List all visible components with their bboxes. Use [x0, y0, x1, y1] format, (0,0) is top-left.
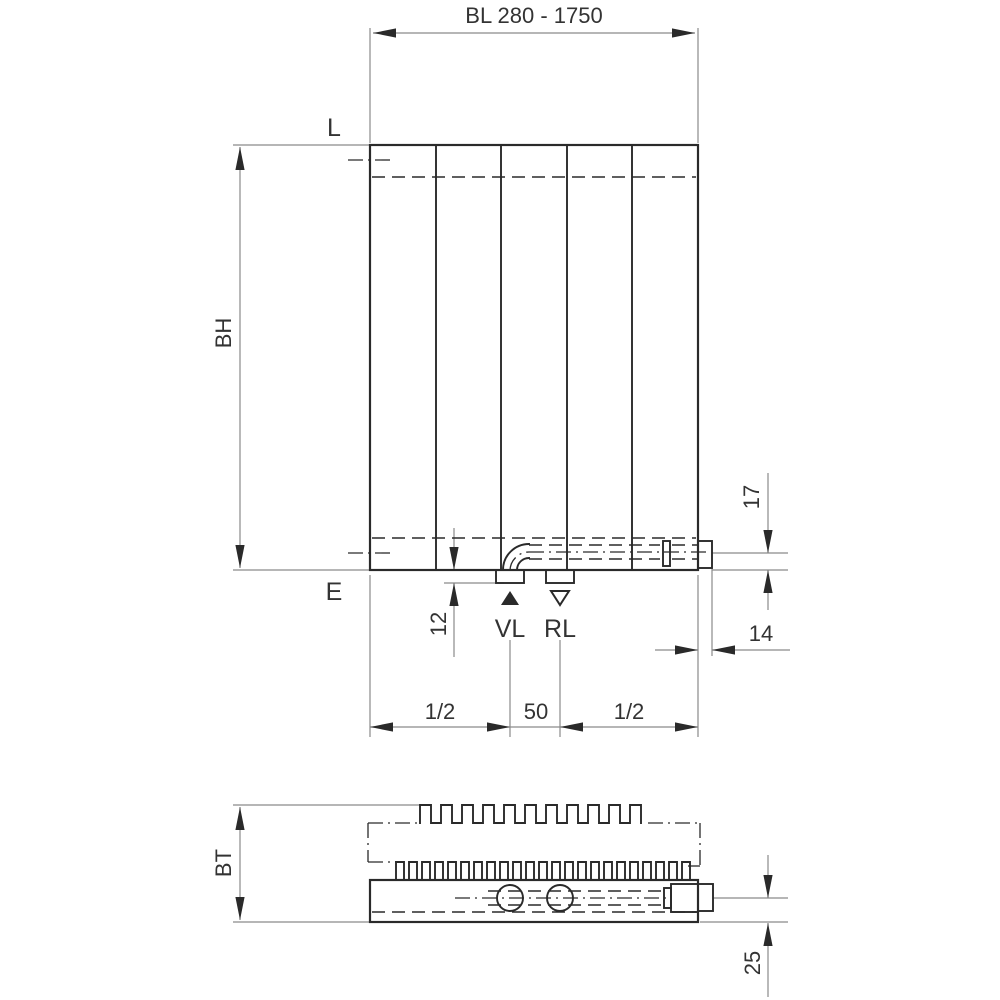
dimension-arrowhead — [763, 875, 772, 898]
dimension-arrowhead — [373, 28, 396, 37]
dimension-arrowhead — [763, 570, 772, 593]
dimension-arrowhead — [675, 645, 698, 654]
drawing-labels: BL 280 - 1750 L E BH BT 12 17 14 25 VL R… — [211, 3, 773, 975]
connection-spigot-front — [698, 541, 712, 568]
dim-center-50: 50 — [524, 699, 548, 724]
top-view — [233, 805, 788, 997]
panel-plate-outline — [370, 880, 698, 922]
dimension-arrowhead — [235, 545, 244, 568]
dim-half-left: 1/2 — [425, 699, 456, 724]
fitting-block-top — [671, 884, 698, 912]
dim-half-right: 1/2 — [614, 699, 645, 724]
dimension-arrowhead — [675, 722, 698, 731]
panel-divider-lines — [436, 145, 632, 570]
dimension-arrowhead — [235, 147, 244, 170]
radiator-dimension-drawing: BL 280 - 1750 L E BH BT 12 17 14 25 VL R… — [0, 0, 1000, 1000]
dimension-arrowhead — [763, 530, 772, 553]
dimension-arrowhead — [235, 897, 244, 920]
radiator-body-outline — [370, 145, 698, 570]
dim-spigot-14: 14 — [749, 621, 773, 646]
dimension-arrowhead — [712, 645, 735, 654]
dimension-arrowhead — [449, 547, 458, 570]
label-supply-vl: VL — [495, 615, 526, 643]
fin-row-upper — [420, 805, 641, 823]
supply-stub — [496, 570, 524, 583]
dim-height-bh: BH — [211, 318, 236, 349]
dimension-arrowhead — [487, 722, 510, 731]
front-center-lines — [348, 160, 710, 571]
label-bottom-edge-e: E — [326, 578, 343, 606]
fitting-flange-front — [663, 541, 670, 566]
label-top-edge-l: L — [327, 114, 341, 142]
dimension-arrowhead — [763, 923, 772, 946]
dimension-arrowhead — [672, 28, 695, 37]
dim-depth-bt: BT — [211, 849, 236, 877]
dim-stub-offset-12: 12 — [426, 612, 451, 636]
technical-drawing-canvas: BL 280 - 1750 L E BH BT 12 17 14 25 VL R… — [0, 0, 1000, 1000]
dim-pipe-offset-17: 17 — [739, 485, 764, 509]
return-flow-triangle-icon — [551, 591, 569, 605]
pipe-elbow — [503, 544, 529, 570]
dimension-arrowhead — [370, 722, 393, 731]
top-extension-lines — [233, 805, 788, 997]
dim-overall-width: BL 280 - 1750 — [465, 3, 602, 28]
supply-flow-triangle-icon — [501, 591, 519, 605]
dimension-arrowhead — [449, 583, 458, 606]
dimension-arrowhead — [560, 722, 583, 731]
label-return-rl: RL — [544, 615, 576, 643]
dimension-arrowhead — [235, 807, 244, 830]
front-hidden-lines — [372, 177, 697, 559]
dim-pipe-offset-25: 25 — [740, 951, 765, 975]
fin-phantom-lines — [368, 823, 700, 866]
connection-spigot-top — [698, 884, 713, 911]
fin-row-lower — [396, 862, 690, 880]
return-stub — [546, 570, 574, 583]
